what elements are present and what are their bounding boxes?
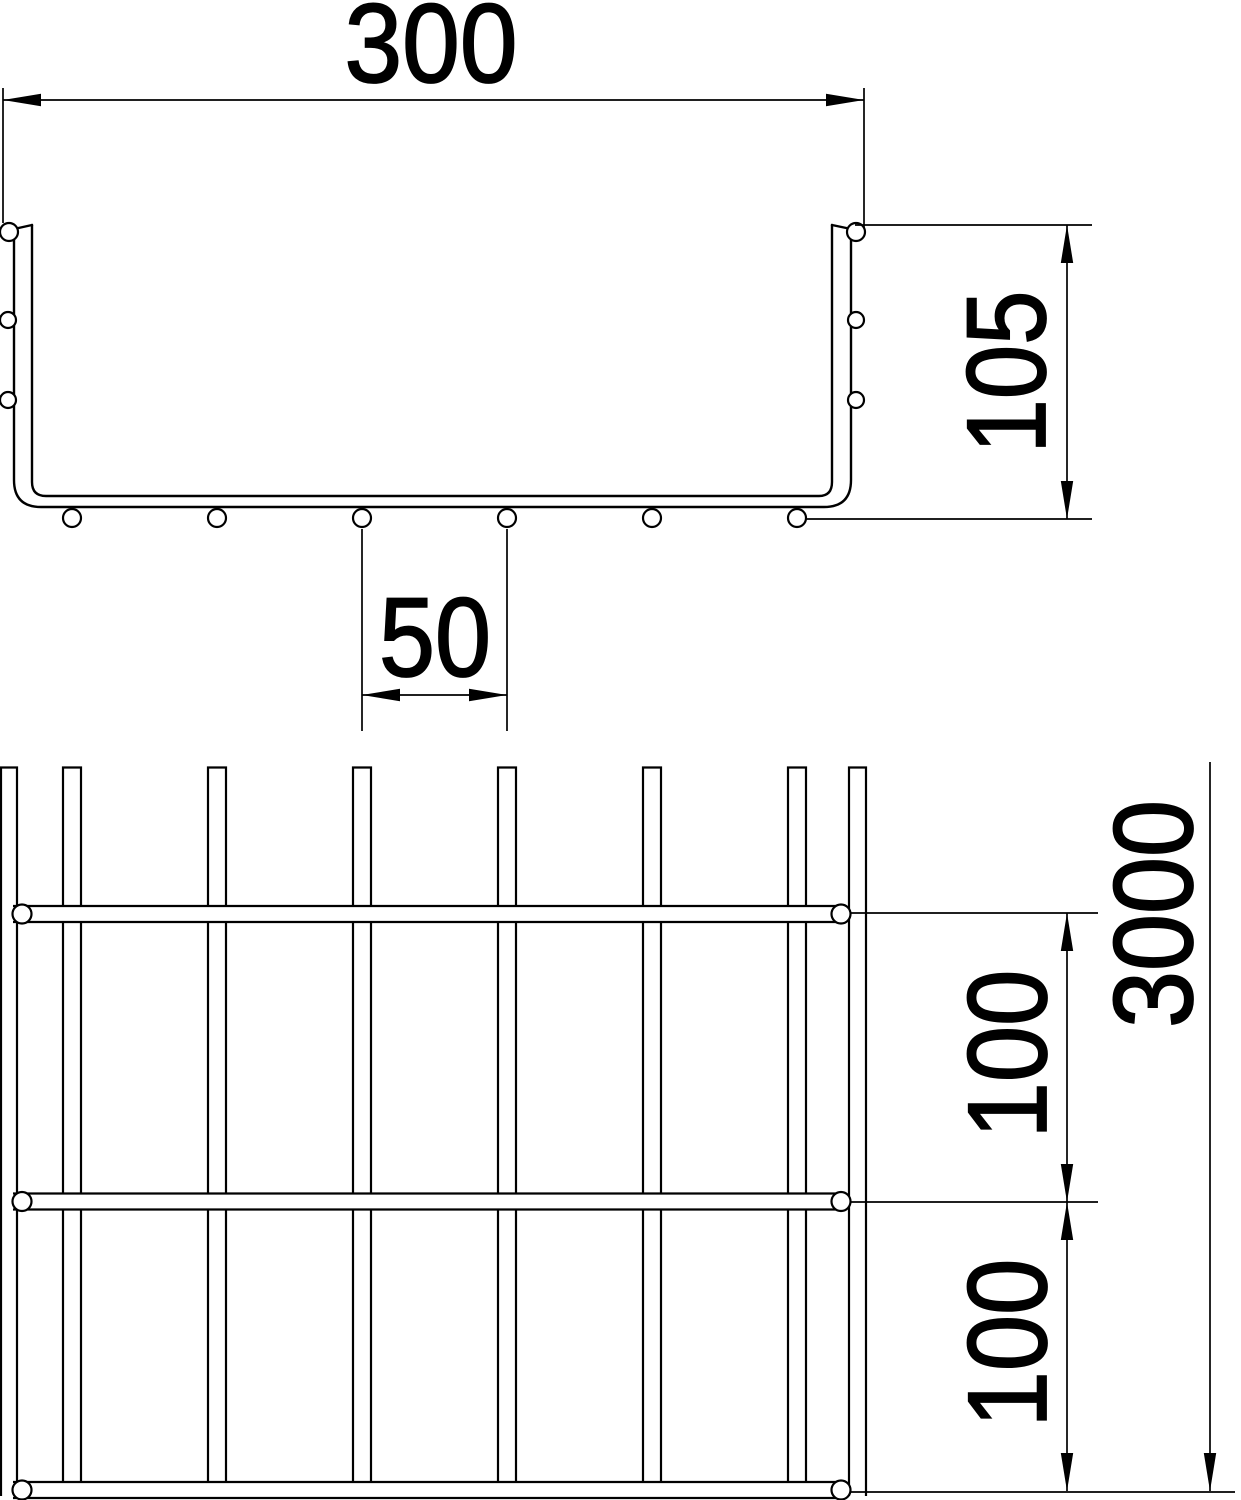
arrowhead-down — [1061, 1453, 1073, 1491]
cross-rung — [13, 1481, 851, 1500]
longitudinal-wire — [353, 768, 371, 1497]
dimension-value-height: 105 — [944, 291, 1069, 454]
cross-rung — [13, 1192, 851, 1211]
longitudinal-wire — [1, 768, 17, 1497]
longitudinal-wire — [643, 768, 661, 1497]
bottom-wire — [353, 509, 371, 527]
longitudinal-wire — [208, 768, 226, 1497]
arrowhead-down — [1061, 1164, 1073, 1202]
arrowhead-up — [1061, 225, 1073, 263]
tray-inner-contour — [32, 225, 832, 496]
longitudinal-wire — [849, 768, 866, 1497]
side-wire — [0, 392, 16, 408]
dimension-width: 300 — [3, 0, 864, 228]
side-wire — [0, 312, 16, 328]
bottom-wire — [63, 509, 81, 527]
bottom-wire — [643, 509, 661, 527]
dimension-rung-spacing-lower: 100 — [851, 1202, 1235, 1492]
rung-end — [13, 1192, 32, 1211]
dimension-value-wire-spacing: 50 — [379, 575, 491, 700]
dimension-wire-spacing: 50 — [362, 529, 507, 731]
arrowhead-up — [1061, 1202, 1073, 1240]
dimension-value-length: 3000 — [1091, 800, 1216, 1028]
dimension-value-rung-spacing-upper: 100 — [945, 970, 1070, 1139]
longitudinal-wire — [788, 768, 806, 1497]
mesh-cable-tray-drawing: 300 105 50 — [0, 0, 1241, 1500]
arrowhead-up — [1061, 913, 1073, 951]
bottom-wire — [208, 509, 226, 527]
rung-end — [832, 905, 851, 924]
plan-view — [1, 768, 866, 1500]
side-wire — [848, 312, 864, 328]
rung-end — [832, 1192, 851, 1211]
dimension-value-width: 300 — [345, 0, 518, 106]
side-wire — [848, 392, 864, 408]
dimension-length: 3000 — [1091, 762, 1216, 1491]
arrowhead-down — [1204, 1453, 1216, 1491]
cross-section-view — [0, 223, 865, 527]
dimension-rung-spacing-upper: 100 — [851, 913, 1098, 1202]
arrowhead-left — [3, 94, 41, 106]
rung-end — [13, 905, 32, 924]
rim-wire-left — [0, 223, 18, 241]
bottom-wire — [498, 509, 516, 527]
bottom-wire — [788, 509, 806, 527]
longitudinal-wire — [63, 768, 81, 1497]
dimension-value-rung-spacing-lower: 100 — [945, 1259, 1070, 1428]
rung-end — [13, 1481, 32, 1500]
arrowhead-right — [826, 94, 864, 106]
cross-rung — [13, 905, 851, 924]
arrowhead-down — [1061, 481, 1073, 519]
dimension-height: 105 — [806, 225, 1092, 519]
tray-outer-contour — [14, 229, 851, 507]
drawing-canvas: 300 105 50 — [0, 0, 1241, 1500]
longitudinal-wire — [498, 768, 516, 1497]
rung-end — [832, 1481, 851, 1500]
